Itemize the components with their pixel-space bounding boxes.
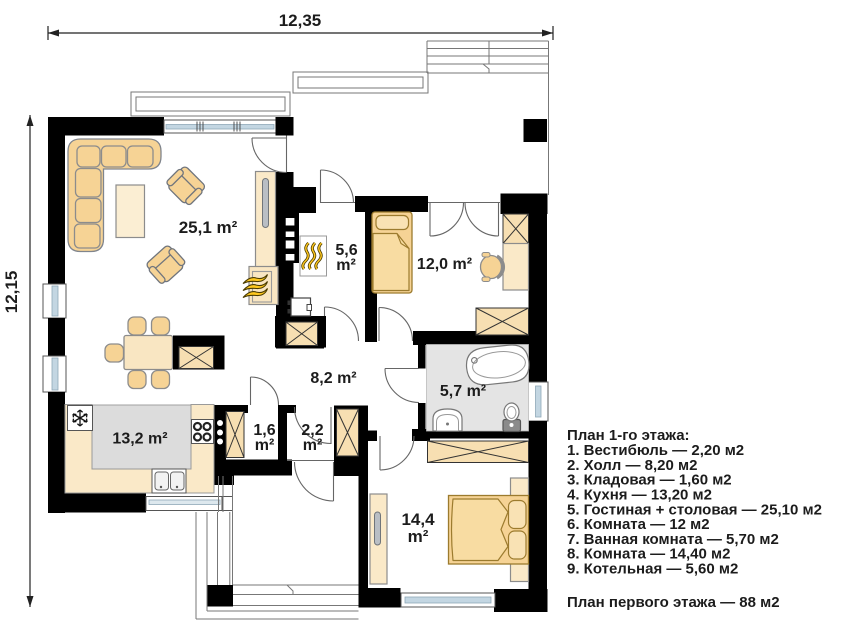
svg-text:12,35: 12,35 [279, 11, 322, 30]
svg-text:m²: m² [303, 437, 323, 454]
svg-text:5,7 m²: 5,7 m² [440, 383, 486, 400]
svg-text:m²: m² [336, 257, 356, 274]
svg-text:План первого этажа — 88 м2: План первого этажа — 88 м2 [567, 594, 780, 611]
svg-text:m²: m² [408, 527, 429, 546]
svg-text:9. Котельная — 5,60 м2: 9. Котельная — 5,60 м2 [567, 561, 738, 578]
svg-text:m²: m² [255, 437, 275, 454]
svg-text:8,2 m²: 8,2 m² [310, 370, 356, 387]
svg-text:12,15: 12,15 [2, 271, 21, 314]
svg-text:25,1 m²: 25,1 m² [179, 218, 238, 237]
svg-text:12,0 m²: 12,0 m² [417, 256, 472, 273]
svg-text:13,2 m²: 13,2 m² [112, 431, 167, 448]
